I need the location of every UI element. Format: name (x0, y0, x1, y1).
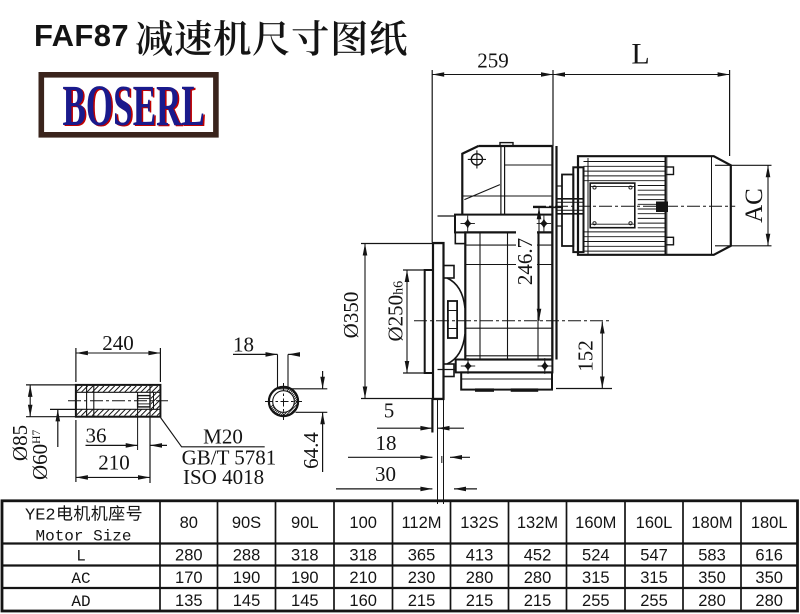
svg-text:190: 190 (233, 569, 261, 587)
svg-text:180M: 180M (691, 514, 732, 532)
svg-text:350: 350 (755, 569, 783, 587)
svg-text:315: 315 (582, 569, 610, 587)
svg-text:ISO 4018: ISO 4018 (183, 465, 264, 489)
svg-text:246.7: 246.7 (513, 238, 537, 285)
svg-text:230: 230 (408, 569, 436, 587)
svg-text:152: 152 (574, 340, 598, 372)
svg-text:365: 365 (408, 547, 436, 565)
svg-text:145: 145 (233, 592, 261, 610)
svg-text:180L: 180L (751, 514, 788, 532)
svg-text:160L: 160L (636, 514, 673, 532)
svg-text:36: 36 (86, 424, 107, 448)
svg-text:190: 190 (291, 569, 319, 587)
svg-text:350: 350 (698, 569, 726, 587)
svg-text:413: 413 (466, 547, 494, 565)
svg-text:280: 280 (755, 592, 783, 610)
svg-text:5: 5 (384, 399, 395, 423)
svg-text:132S: 132S (460, 514, 499, 532)
svg-text:64.4: 64.4 (299, 432, 323, 469)
svg-text:100: 100 (349, 514, 377, 532)
svg-text:210: 210 (349, 569, 377, 587)
svg-text:452: 452 (524, 547, 552, 565)
svg-text:AC: AC (741, 188, 768, 223)
svg-text:Ø350: Ø350 (339, 292, 363, 339)
svg-text:80: 80 (180, 514, 198, 532)
svg-text:547: 547 (640, 547, 668, 565)
svg-text:259: 259 (477, 49, 509, 73)
svg-text:215: 215 (408, 592, 436, 610)
svg-text:280: 280 (466, 569, 494, 587)
svg-text:90S: 90S (232, 514, 261, 532)
svg-text:L: L (76, 548, 86, 566)
svg-text:132M: 132M (517, 514, 558, 532)
svg-text:280: 280 (175, 547, 203, 565)
svg-text:18: 18 (233, 333, 254, 357)
svg-text:170: 170 (175, 569, 203, 587)
svg-text:90L: 90L (291, 514, 319, 532)
svg-text:BOSERL: BOSERL (63, 74, 205, 138)
svg-text:AC: AC (71, 570, 90, 588)
svg-text:318: 318 (291, 547, 319, 565)
svg-text:318: 318 (349, 547, 377, 565)
svg-text:YE2: YE2 (25, 507, 56, 526)
svg-text:315: 315 (640, 569, 668, 587)
svg-text:215: 215 (524, 592, 552, 610)
svg-text:583: 583 (698, 547, 726, 565)
svg-text:160M: 160M (575, 514, 616, 532)
svg-text:255: 255 (582, 592, 610, 610)
svg-text:Motor Size: Motor Size (35, 528, 131, 546)
svg-text:215: 215 (466, 592, 494, 610)
svg-text:524: 524 (582, 547, 610, 565)
svg-text:210: 210 (98, 451, 130, 475)
svg-text:160: 160 (349, 592, 377, 610)
svg-text:280: 280 (698, 592, 726, 610)
svg-text:FAF87: FAF87 (34, 18, 129, 53)
svg-text:145: 145 (291, 592, 319, 610)
svg-text:18: 18 (376, 431, 397, 455)
svg-text:112M: 112M (401, 514, 441, 532)
svg-text:616: 616 (755, 547, 783, 565)
svg-text:288: 288 (233, 547, 261, 565)
svg-text:30: 30 (375, 462, 396, 486)
svg-text:AD: AD (71, 593, 90, 611)
svg-text:280: 280 (524, 569, 552, 587)
svg-text:255: 255 (640, 592, 668, 610)
svg-text:135: 135 (175, 592, 203, 610)
svg-text:L: L (631, 38, 649, 71)
svg-text:240: 240 (102, 331, 134, 355)
